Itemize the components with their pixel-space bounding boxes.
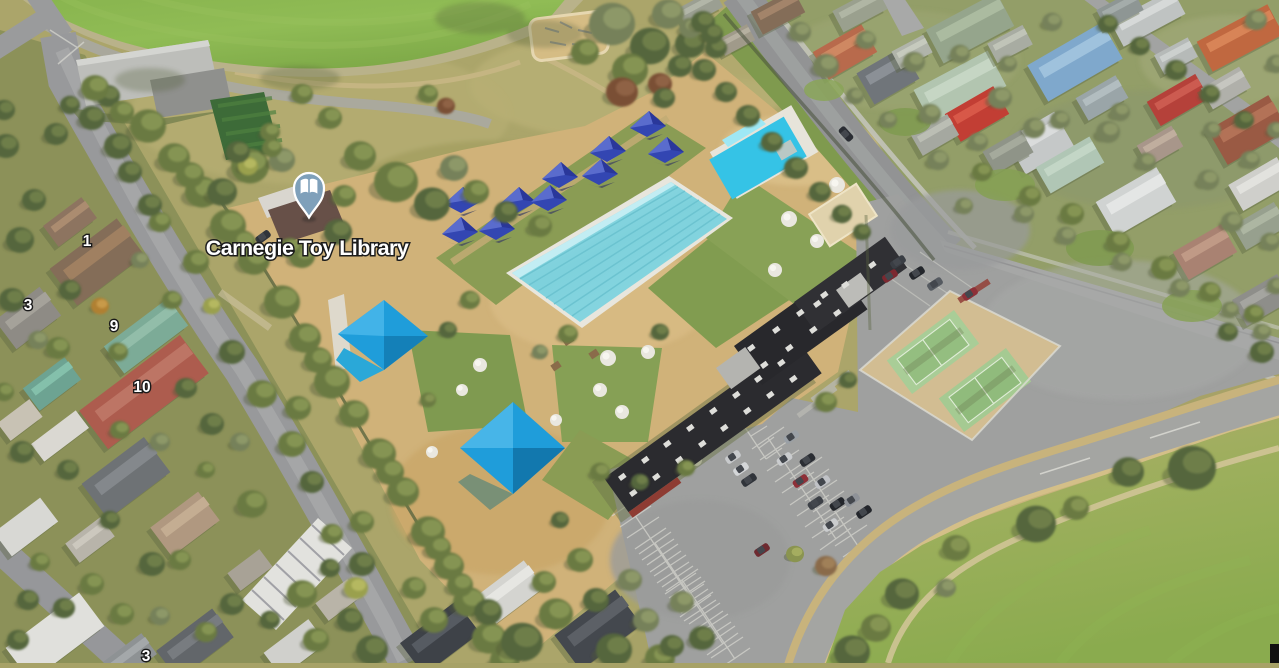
svg-text:1: 1 (83, 233, 92, 250)
svg-text:3: 3 (24, 297, 33, 314)
svg-text:Carnegie Toy Library: Carnegie Toy Library (206, 236, 409, 260)
svg-text:9: 9 (110, 318, 119, 335)
svg-text:10: 10 (133, 379, 150, 396)
svg-text:3: 3 (142, 648, 151, 663)
